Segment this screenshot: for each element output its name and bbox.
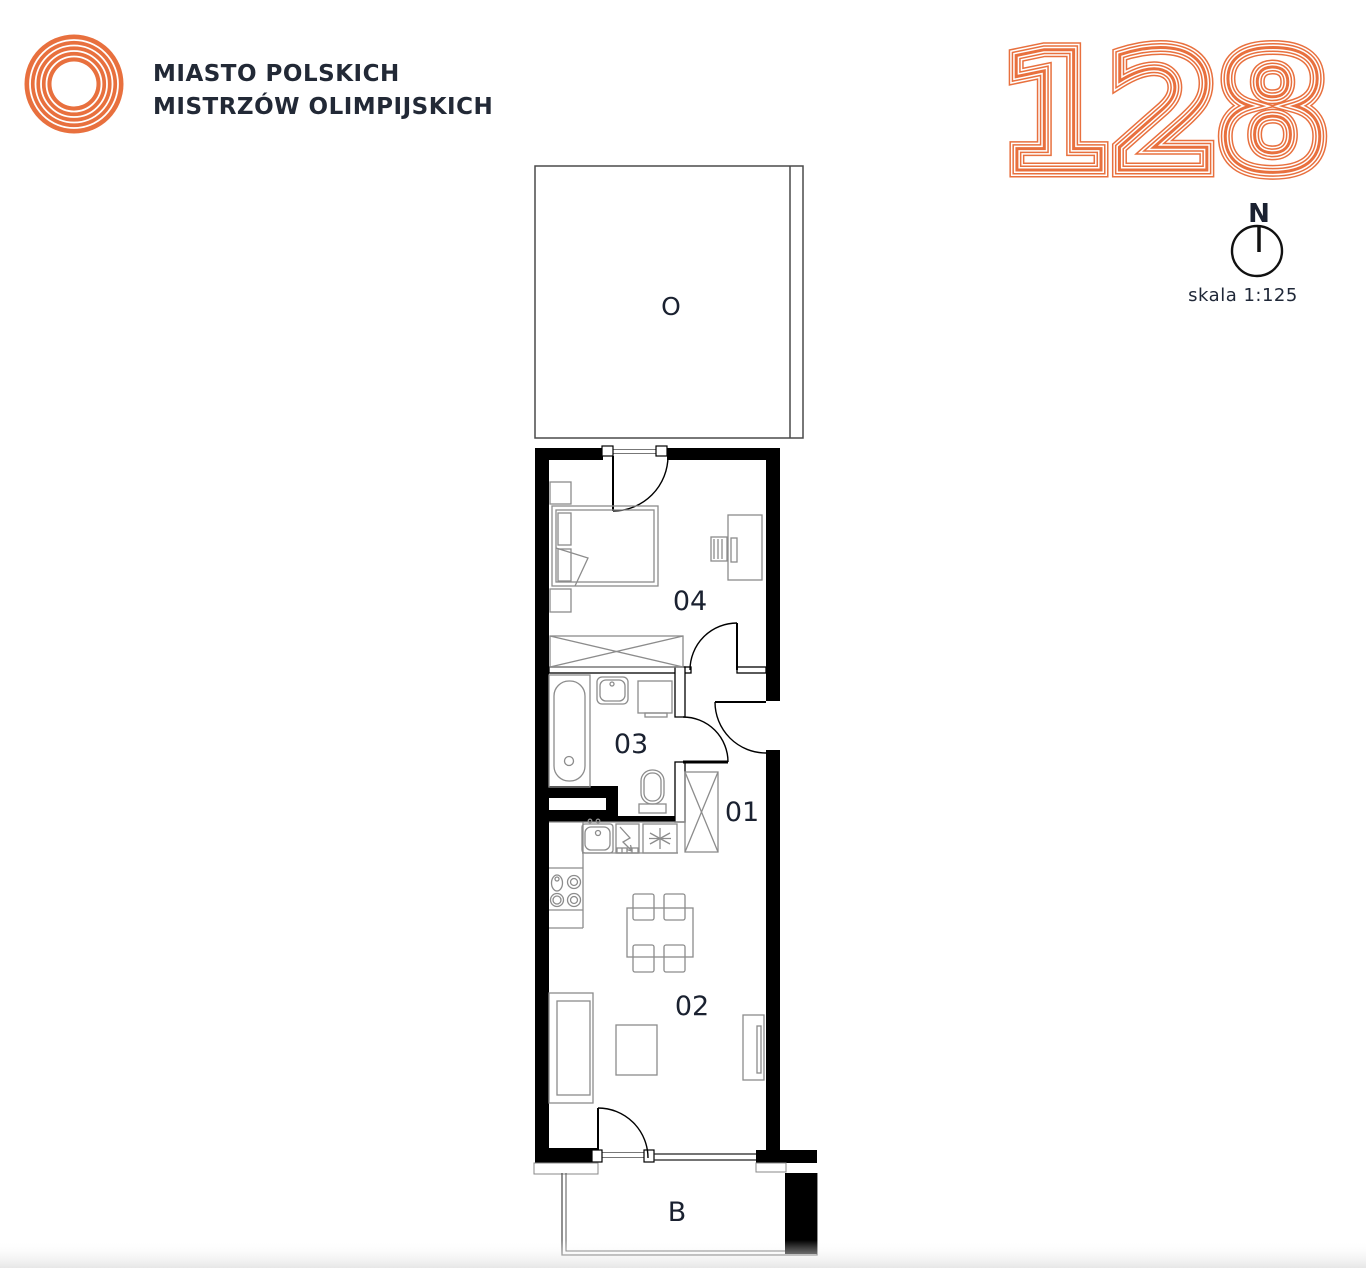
svg-text:128: 128	[998, 17, 1324, 209]
brand-name-line2: MISTRZÓW OLIMPIJSKICH	[153, 92, 493, 120]
compass-icon: N	[1232, 199, 1282, 276]
nightstand	[550, 482, 571, 504]
hall-wardrobe-icon	[685, 772, 718, 852]
entrance-door	[715, 702, 766, 753]
room-02-furniture	[549, 819, 764, 1103]
living-room-window	[654, 1154, 756, 1160]
washing-machine-icon	[638, 681, 672, 717]
dining-table	[627, 894, 693, 972]
balcony-label: B	[668, 1197, 687, 1228]
brand-name-line1: MIASTO POLSKICH	[153, 61, 400, 87]
balcony-door	[592, 1108, 654, 1162]
bed	[552, 506, 658, 586]
washbasin-icon	[597, 677, 628, 704]
bathtub-icon	[549, 675, 590, 787]
desk-chair	[711, 537, 727, 561]
compass-north-label: N	[1248, 199, 1270, 229]
sofa	[549, 993, 593, 1103]
terrace-door	[602, 446, 668, 511]
room-label-03: 03	[614, 729, 648, 760]
kitchen-sink-icon	[582, 819, 613, 853]
room-04-door	[690, 623, 737, 670]
terrace-label: O	[661, 292, 681, 321]
room-label-04: 04	[673, 586, 707, 617]
window-sill	[756, 1163, 786, 1172]
page: { "brand": { "line1": "MIASTO POLSKICH",…	[0, 0, 1366, 1268]
room-label-01: 01	[725, 797, 759, 828]
coffee-table	[616, 1025, 657, 1075]
scale-label: skala 1:125	[1188, 285, 1298, 306]
brand-logo-icon	[25, 35, 124, 134]
nightstand	[550, 589, 571, 612]
tv-cabinet	[743, 1015, 764, 1080]
bathroom-door	[683, 717, 728, 762]
page-edge-shadow	[0, 1240, 1366, 1268]
toilet-icon	[639, 770, 666, 813]
cooktop-icon	[551, 875, 581, 907]
window-sill	[534, 1163, 598, 1174]
fridge-icon	[643, 824, 677, 853]
dishwasher-icon	[616, 824, 639, 853]
wardrobe-icon	[550, 636, 683, 667]
room-04-furniture	[550, 482, 762, 667]
room-label-02: 02	[675, 991, 709, 1022]
unit-number: 128 128 128 128 128	[998, 17, 1324, 209]
floor-plan-sheet: MIASTO POLSKICH MISTRZÓW OLIMPIJSKICH 12…	[0, 0, 1366, 1268]
desk	[728, 515, 762, 580]
